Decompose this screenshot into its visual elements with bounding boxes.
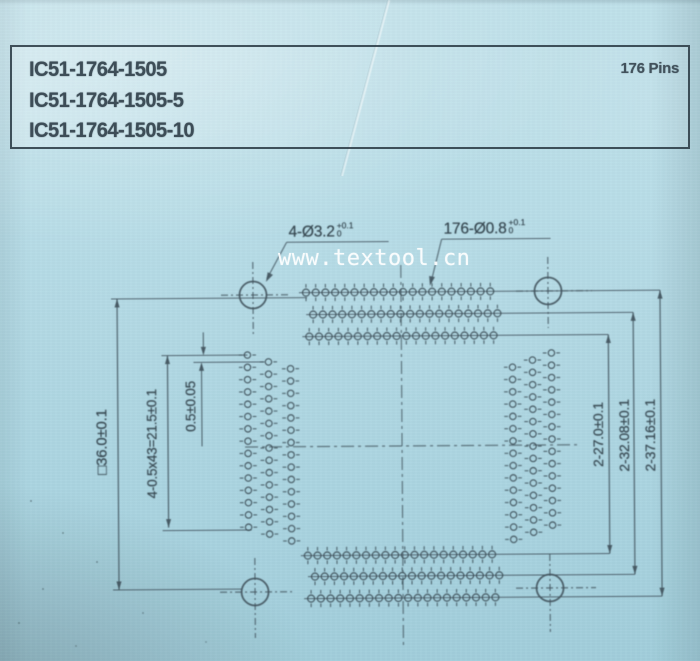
right-pin-col-1 bbox=[504, 364, 522, 543]
dimension-line-inner-span bbox=[606, 335, 613, 554]
pin-hole-callout: 176-Ø0.8 +0.1 0 bbox=[443, 220, 525, 239]
dimension-line-outer-span bbox=[657, 290, 664, 596]
centerline-vertical bbox=[401, 265, 404, 649]
datasheet-photo: IC51-1764-1505 IC51-1764-1505-5 IC51-176… bbox=[0, 0, 700, 661]
top-row-3-line bbox=[302, 335, 608, 337]
dimension-line-body-square bbox=[111, 298, 309, 590]
mounting-hole-top-right bbox=[516, 257, 592, 329]
left-pin-col-1 bbox=[239, 352, 257, 531]
right-pin-col-3 bbox=[543, 350, 561, 529]
dimension-label-pin-span: 4-0.5x43=21.5±0.1 bbox=[144, 389, 160, 499]
mounting-hole-bottom-left bbox=[220, 558, 294, 639]
left-pin-col-3 bbox=[282, 365, 300, 544]
pin-hole-tolerance: +0.1 0 bbox=[509, 218, 526, 234]
dimension-line-pin-span bbox=[161, 355, 251, 531]
top-row-1-line bbox=[299, 290, 660, 293]
dimension-label-row-offset: 0.5±0.05 bbox=[183, 381, 198, 432]
mounting-hole-callout-text: 4-Ø3.2 bbox=[289, 223, 335, 241]
watermark-text: www.textool.cn bbox=[278, 246, 470, 271]
dimension-label-body-square: □36.0±0.1 bbox=[93, 409, 110, 475]
dimension-label-inner-span: 2-27.0±0.1 bbox=[590, 402, 606, 467]
pin-hole-callout-text: 176-Ø0.8 bbox=[443, 220, 506, 238]
left-pin-col-2 bbox=[260, 359, 278, 538]
dimension-label-outer-span: 2-37.16±0.1 bbox=[642, 399, 659, 472]
bottom-row-3-line bbox=[304, 596, 662, 598]
mounting-hole-callout: 4-Ø3.2 +0.1 0 bbox=[289, 223, 354, 241]
centerline-horizontal bbox=[245, 445, 579, 447]
dimension-label-middle-span: 2-32.08±0.1 bbox=[616, 399, 633, 472]
mounting-hole-bottom-right bbox=[516, 554, 597, 633]
right-pin-col-2 bbox=[524, 357, 542, 536]
technical-drawing: 4-Ø3.2 +0.1 0 176-Ø0.8 +0.1 0 □36.0±0.1 … bbox=[0, 0, 700, 661]
mounting-hole-tolerance: +0.1 0 bbox=[337, 221, 354, 237]
bottom-row-1-line bbox=[301, 554, 610, 556]
drawing-canvas bbox=[0, 0, 700, 661]
